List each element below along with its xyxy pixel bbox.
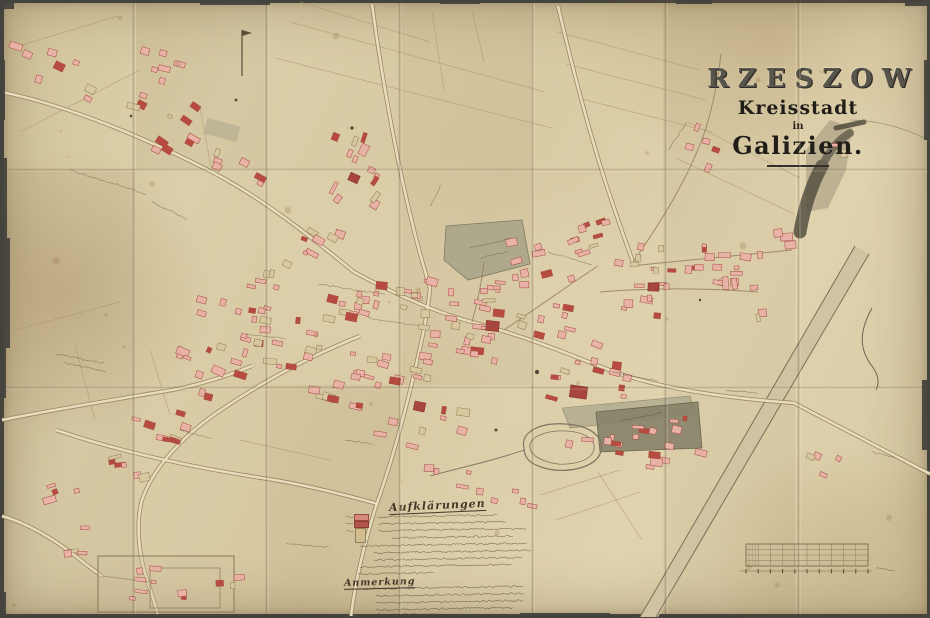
building: [712, 146, 721, 153]
foxing-spot: [576, 381, 580, 385]
building: [567, 236, 579, 245]
building: [670, 419, 678, 423]
handwritten-line: [374, 557, 522, 561]
green-areas-layer: [204, 118, 702, 452]
building: [431, 331, 441, 338]
building: [615, 450, 623, 455]
map-graphic: [12, 16, 118, 48]
handwritten-line: [429, 185, 441, 206]
building: [361, 132, 368, 143]
building: [367, 166, 375, 174]
building: [363, 374, 374, 380]
building: [630, 262, 638, 266]
handwritten-line: [56, 353, 105, 364]
map-graphic: [558, 32, 700, 70]
building: [272, 340, 283, 347]
handwritten-line: [368, 317, 419, 327]
foxing-spot: [149, 181, 154, 186]
building: [633, 434, 639, 439]
building: [434, 468, 439, 474]
legend-swatch-0: [354, 514, 369, 521]
building: [722, 277, 729, 290]
building: [512, 274, 519, 281]
handwritten-line: [64, 362, 106, 372]
foxing-spot: [494, 530, 499, 535]
map-graphic: [240, 440, 330, 460]
photo-edge-patch: [0, 348, 6, 398]
building: [664, 284, 669, 290]
foxing-spot: [645, 151, 649, 155]
building: [665, 442, 675, 449]
building: [197, 310, 207, 317]
foxing-spot: [313, 332, 319, 338]
foxing-spot: [388, 301, 391, 304]
building: [389, 377, 401, 386]
building: [520, 269, 529, 278]
legend-swatch-2: [355, 528, 366, 543]
field-boundary-lines-layer: [8, 2, 800, 540]
photo-edge-patch: [0, 592, 6, 618]
building: [632, 425, 644, 429]
building: [423, 359, 433, 366]
foxing-spot: [66, 156, 68, 158]
building: [230, 582, 235, 588]
ink-dot: [535, 370, 539, 374]
building: [255, 278, 266, 283]
building: [694, 264, 703, 270]
handwritten-line: [726, 389, 758, 394]
building: [495, 281, 505, 285]
building: [137, 568, 143, 575]
foxing-spot: [12, 603, 16, 607]
building: [64, 550, 72, 557]
building: [614, 259, 623, 266]
building: [589, 243, 598, 249]
building: [176, 410, 186, 417]
building: [276, 364, 282, 369]
building: [329, 181, 338, 194]
foxing-spot: [746, 564, 752, 570]
building: [450, 302, 459, 306]
map-graphic: [430, 450, 524, 476]
building: [233, 370, 247, 380]
building: [491, 498, 498, 504]
building: [139, 92, 147, 99]
building: [553, 303, 560, 308]
building: [9, 41, 23, 51]
building: [239, 157, 250, 167]
building: [316, 345, 322, 350]
building: [451, 321, 460, 329]
building: [190, 101, 201, 111]
building: [456, 426, 467, 436]
handwritten-line: [876, 568, 895, 572]
building: [374, 382, 381, 389]
building: [196, 296, 207, 305]
building: [456, 349, 464, 354]
map-graphic: [2, 92, 354, 272]
building: [151, 580, 156, 583]
building: [806, 453, 815, 461]
building: [140, 47, 150, 56]
building: [216, 343, 226, 351]
building: [195, 370, 204, 379]
photo-edge-patch: [150, 614, 270, 618]
building: [517, 320, 527, 330]
building: [180, 115, 192, 126]
building: [702, 138, 710, 145]
map-graphic: [530, 431, 594, 464]
building: [456, 484, 468, 490]
landmark-building: [486, 320, 500, 331]
building: [685, 266, 692, 274]
map-graphic: [862, 308, 878, 390]
building: [527, 503, 537, 509]
building: [819, 471, 827, 478]
building: [702, 244, 707, 248]
map-graphic: [200, 108, 212, 172]
map-graphic: [275, 58, 552, 128]
building: [400, 304, 407, 310]
building: [259, 316, 271, 325]
building: [704, 163, 712, 173]
map-graphic: [794, 403, 930, 474]
building: [47, 48, 57, 57]
ink-dot: [235, 99, 238, 102]
building: [129, 596, 135, 600]
map-graphic: [432, 12, 444, 90]
building: [667, 269, 676, 273]
building: [730, 271, 742, 275]
building: [374, 431, 387, 437]
handwritten-line: [376, 592, 524, 596]
building: [440, 416, 446, 421]
map-graphic: [600, 289, 758, 292]
building: [121, 462, 126, 468]
map-graphic: [470, 2, 484, 62]
building: [234, 574, 245, 580]
building: [242, 348, 248, 357]
building: [731, 278, 737, 289]
building: [211, 365, 226, 378]
building: [327, 395, 339, 403]
building: [653, 267, 658, 273]
building: [654, 312, 661, 318]
building: [750, 285, 758, 291]
building: [167, 114, 172, 119]
building: [456, 408, 470, 417]
building: [740, 253, 752, 261]
building: [178, 589, 187, 596]
building: [370, 191, 380, 203]
ink-dot: [495, 429, 498, 432]
building: [47, 483, 56, 488]
foxing-spot: [175, 61, 181, 67]
photo-edge-patch: [905, 0, 930, 6]
handwritten-line: [345, 439, 373, 444]
foxing-spot: [369, 402, 373, 406]
handwritten-line: [378, 521, 506, 525]
map-graphic: [578, 98, 712, 132]
handwritten-line: [246, 333, 286, 339]
foxing-spot: [415, 287, 421, 293]
building: [545, 394, 557, 401]
building: [406, 443, 419, 450]
building: [410, 366, 422, 373]
building: [471, 351, 479, 357]
building: [359, 309, 370, 317]
foxing-spot: [53, 258, 60, 265]
building: [424, 374, 431, 381]
legend-swatch-1: [354, 521, 369, 528]
building: [647, 295, 652, 301]
building: [260, 326, 271, 333]
landmark-building: [413, 401, 426, 412]
handwritten-line: [70, 169, 113, 184]
foxing-spot: [104, 313, 108, 317]
building: [213, 149, 221, 158]
building: [308, 386, 320, 394]
building: [512, 489, 518, 493]
building: [263, 358, 276, 365]
building: [419, 427, 426, 435]
building: [370, 176, 379, 186]
building: [541, 269, 553, 278]
building: [671, 425, 682, 434]
building: [424, 464, 434, 472]
building: [282, 259, 292, 268]
handwritten-line: [286, 543, 329, 547]
foxing-spot: [886, 515, 892, 521]
building: [563, 304, 574, 312]
building: [149, 566, 161, 571]
photo-edge-patch: [440, 0, 480, 4]
building: [491, 358, 497, 365]
map-graphic: [2, 92, 354, 272]
building: [388, 418, 398, 426]
map-graphic: [566, 64, 706, 100]
building: [220, 298, 227, 306]
building: [619, 385, 625, 392]
map-graphic: [56, 430, 378, 504]
map-graphic: [75, 345, 95, 420]
photo-edge-patch: [520, 613, 610, 618]
map-graphic: [598, 472, 642, 540]
foxing-spot: [740, 243, 747, 250]
handwritten-line: [362, 613, 442, 616]
map-graphic: [98, 556, 234, 612]
handwritten-line: [378, 527, 526, 531]
town-plan-drawing: [0, 0, 930, 618]
building: [373, 300, 380, 309]
foxing-spot: [401, 481, 403, 483]
map-graphic: [8, 302, 120, 332]
landmark-building: [569, 385, 588, 399]
building: [327, 294, 339, 304]
building: [694, 123, 700, 131]
building: [35, 75, 43, 84]
building: [74, 488, 80, 494]
building: [352, 155, 359, 163]
map-graphic: [556, 492, 640, 520]
building: [109, 459, 116, 465]
building: [634, 284, 644, 287]
building: [346, 149, 353, 158]
building: [286, 363, 297, 370]
building: [578, 224, 586, 233]
handwritten-line: [667, 123, 687, 151]
map-graphic: [150, 350, 170, 415]
enclosure-layer: [98, 556, 234, 612]
building: [158, 65, 170, 73]
building: [428, 343, 438, 348]
building: [695, 448, 708, 457]
foxing-spot: [123, 346, 126, 349]
handwritten-line: [346, 523, 353, 524]
building: [77, 551, 87, 555]
building: [685, 143, 694, 151]
handwritten-line: [374, 549, 531, 554]
handwritten-line: [378, 514, 497, 518]
handwritten-line: [376, 600, 523, 604]
handwritten-line: [152, 201, 188, 220]
building: [476, 488, 483, 495]
building: [151, 67, 158, 73]
foxing-spot: [60, 130, 62, 132]
building: [532, 249, 546, 257]
building: [248, 307, 256, 313]
building: [53, 61, 66, 72]
building: [757, 252, 763, 259]
building: [357, 291, 362, 297]
building: [565, 440, 573, 449]
handwriting-layer: [56, 123, 895, 616]
handwritten-line: [360, 563, 512, 567]
building: [481, 288, 487, 294]
map-graphic: [2, 516, 102, 576]
map-graphic: [290, 22, 545, 92]
map-graphic: [540, 470, 620, 495]
building: [649, 427, 657, 435]
building: [591, 340, 603, 349]
building: [658, 246, 663, 252]
building: [479, 305, 491, 312]
building: [705, 253, 714, 260]
building: [235, 308, 242, 315]
building: [367, 356, 377, 363]
building: [493, 309, 505, 318]
building: [159, 50, 167, 57]
building: [52, 488, 59, 495]
foxing-spot: [285, 207, 292, 214]
photo-edge-patch: [0, 238, 10, 348]
building: [356, 403, 363, 409]
oxbow-and-streams-layer: [430, 424, 601, 476]
building: [269, 270, 275, 278]
building: [520, 498, 526, 505]
foxing-spot: [333, 33, 340, 40]
building: [830, 144, 839, 147]
building: [301, 236, 308, 242]
photo-edge-patch: [0, 0, 14, 9]
building: [73, 59, 80, 66]
building: [376, 281, 388, 290]
building: [323, 314, 336, 323]
building: [466, 470, 471, 474]
foxing-spot: [774, 582, 779, 587]
building: [520, 282, 529, 288]
map-graphic: [444, 220, 530, 280]
building: [621, 307, 627, 311]
pole-flag: [242, 30, 252, 36]
building: [635, 254, 641, 261]
map-graphic: [300, 2, 430, 42]
building: [517, 313, 526, 319]
building: [575, 360, 581, 365]
building: [835, 455, 841, 462]
building: [143, 420, 155, 430]
handwritten-line: [362, 585, 523, 590]
building: [773, 228, 783, 237]
building: [537, 315, 544, 323]
ink-dot: [699, 299, 701, 301]
building: [206, 347, 212, 354]
building: [482, 299, 495, 303]
foxing-spot: [118, 16, 123, 21]
building: [159, 77, 166, 84]
ink-dot: [130, 115, 133, 118]
foxing-spot: [755, 77, 760, 82]
building: [648, 451, 660, 459]
foxing-spot: [820, 71, 823, 74]
building: [132, 417, 141, 422]
building: [351, 136, 358, 146]
building: [551, 375, 559, 380]
building: [441, 406, 446, 414]
landmark-building: [348, 172, 360, 183]
foxing-spot: [665, 317, 669, 321]
building: [204, 393, 213, 401]
handwritten-line: [346, 516, 353, 518]
building: [81, 526, 90, 530]
building: [83, 95, 92, 103]
building: [719, 253, 731, 258]
building: [419, 325, 430, 331]
handwritten-line: [346, 530, 354, 531]
building: [421, 310, 430, 318]
wislok-river-layer: [640, 120, 929, 617]
handwritten-line: [358, 572, 434, 575]
building: [487, 285, 494, 290]
map-graphic: [836, 122, 864, 128]
building: [637, 243, 644, 251]
building: [534, 243, 542, 251]
building: [646, 465, 654, 470]
building: [713, 264, 722, 271]
handwritten-line: [360, 542, 527, 547]
photo-edge-patch: [924, 60, 930, 140]
building: [230, 358, 242, 366]
building: [396, 287, 405, 296]
building: [295, 317, 300, 324]
photo-edge-patch: [922, 380, 930, 450]
building: [561, 312, 567, 319]
building: [557, 330, 566, 339]
building: [621, 394, 627, 398]
building: [481, 335, 491, 343]
building: [560, 368, 570, 375]
photo-edge-patch: [676, 0, 712, 4]
